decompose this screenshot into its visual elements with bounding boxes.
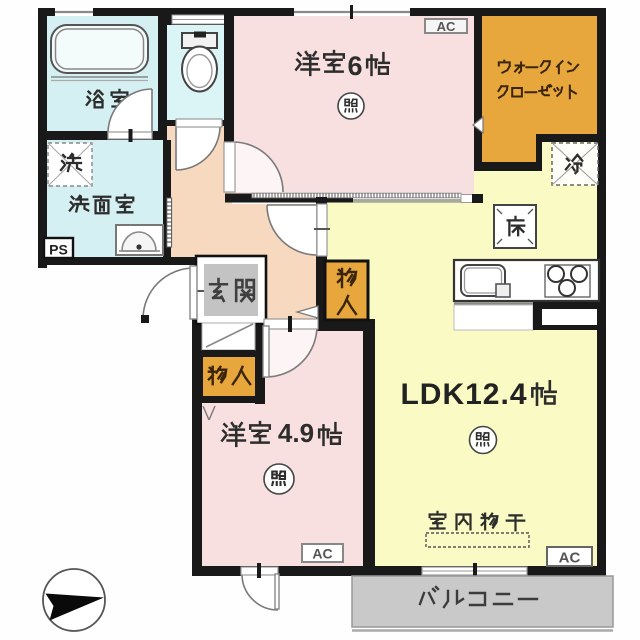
svg-text:4.9: 4.9 — [278, 418, 314, 448]
svg-text:AC: AC — [559, 550, 581, 567]
svg-text:AC: AC — [312, 546, 332, 562]
svg-text:AC: AC — [437, 19, 456, 34]
svg-text:6: 6 — [347, 51, 362, 81]
svg-text:PS: PS — [49, 242, 68, 258]
svg-text:LDK12.4: LDK12.4 — [400, 378, 527, 411]
